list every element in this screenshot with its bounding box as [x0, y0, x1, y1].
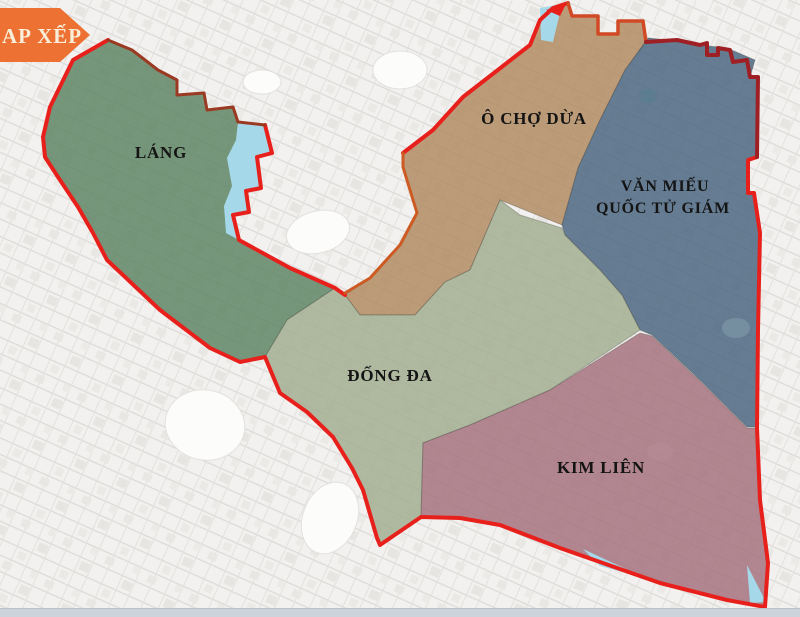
banner-label: AP XẾP: [2, 24, 82, 48]
label-lang: LÁNG: [135, 143, 187, 162]
label-o-cho-dua: Ô CHỢ DỪA: [481, 109, 587, 128]
label-dong-da: ĐỐNG ĐA: [347, 365, 432, 385]
label-van-mieu-line1: VĂN MIẾU: [621, 176, 710, 195]
map-screenshot: LÁNG Ô CHỢ DỪA VĂN MIẾU QUỐC TỬ GIÁM ĐỐN…: [0, 0, 800, 617]
district-map: LÁNG Ô CHỢ DỪA VĂN MIẾU QUỐC TỬ GIÁM ĐỐN…: [0, 0, 800, 617]
footer-strip: [0, 608, 800, 617]
label-kim-lien: KIM LIÊN: [557, 458, 645, 477]
label-van-mieu-line2: QUỐC TỬ GIÁM: [596, 197, 730, 217]
